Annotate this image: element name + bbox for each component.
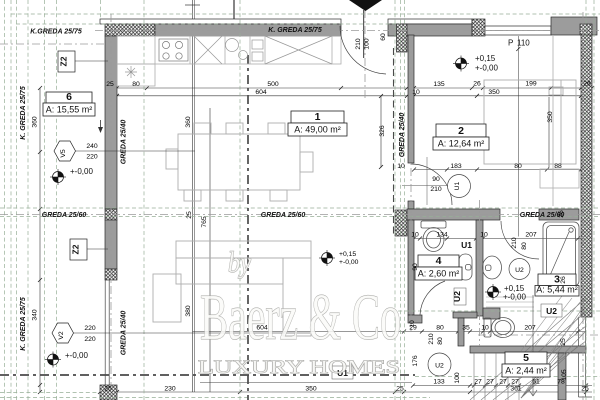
svg-text:25: 25 xyxy=(581,386,589,393)
svg-text:25: 25 xyxy=(106,81,114,88)
svg-text:210: 210 xyxy=(430,186,442,193)
svg-text:230: 230 xyxy=(164,386,176,393)
svg-text:240: 240 xyxy=(86,143,98,150)
svg-text:210: 210 xyxy=(428,333,435,345)
svg-text:Z2: Z2 xyxy=(59,56,69,66)
svg-text:210: 210 xyxy=(511,237,518,249)
svg-text:26: 26 xyxy=(473,81,481,88)
svg-text:Z2: Z2 xyxy=(71,244,81,254)
svg-text:350: 350 xyxy=(547,111,554,123)
svg-text:135: 135 xyxy=(433,81,445,88)
svg-text:207: 207 xyxy=(524,325,536,332)
svg-text:27: 27 xyxy=(474,379,482,386)
svg-text:27: 27 xyxy=(499,379,507,386)
svg-text:U1: U1 xyxy=(454,181,461,190)
svg-text:25: 25 xyxy=(560,338,567,346)
svg-text:350: 350 xyxy=(488,89,500,96)
svg-text:199: 199 xyxy=(525,81,537,88)
svg-text:A: 49,00 m²: A: 49,00 m² xyxy=(294,125,341,135)
svg-text:A: 12,64 m²: A: 12,64 m² xyxy=(438,139,485,149)
svg-text:+-0,00: +-0,00 xyxy=(70,167,93,176)
svg-text:K.GREDA 25/75: K.GREDA 25/75 xyxy=(30,29,82,36)
svg-text:GREDA 25/40: GREDA 25/40 xyxy=(121,120,128,165)
svg-text:27: 27 xyxy=(511,379,519,386)
svg-text:60: 60 xyxy=(380,33,387,41)
svg-text:GREDA 25/40: GREDA 25/40 xyxy=(399,113,406,158)
svg-text:4: 4 xyxy=(436,255,442,267)
svg-text:10: 10 xyxy=(412,89,420,96)
svg-text:10: 10 xyxy=(397,163,405,170)
svg-text:A: 5,44 m²: A: 5,44 m² xyxy=(536,285,578,295)
svg-text:25: 25 xyxy=(396,386,404,393)
svg-text:U2: U2 xyxy=(546,306,557,316)
svg-text:361: 361 xyxy=(510,386,522,393)
svg-text:360: 360 xyxy=(32,116,39,128)
svg-text:10: 10 xyxy=(409,320,416,328)
svg-text:V5: V5 xyxy=(60,149,67,158)
svg-text:210: 210 xyxy=(355,38,362,50)
svg-text:360: 360 xyxy=(185,116,192,128)
svg-text:U2: U2 xyxy=(515,267,524,274)
svg-text:350: 350 xyxy=(305,386,317,393)
svg-text:26: 26 xyxy=(558,210,565,218)
svg-text:25: 25 xyxy=(104,386,112,393)
svg-text:220: 220 xyxy=(84,336,96,343)
svg-text:+0,15: +0,15 xyxy=(339,251,356,258)
svg-text:88: 88 xyxy=(554,163,562,170)
svg-text:51: 51 xyxy=(532,379,540,386)
svg-text:10: 10 xyxy=(480,232,488,239)
svg-text:35: 35 xyxy=(462,325,470,332)
svg-text:P: P xyxy=(508,39,513,48)
svg-text:10: 10 xyxy=(411,232,419,239)
svg-text:765: 765 xyxy=(201,216,208,228)
svg-text:2: 2 xyxy=(458,125,464,137)
svg-text:134: 134 xyxy=(436,232,448,239)
svg-text:by: by xyxy=(228,246,252,279)
svg-text:U2: U2 xyxy=(435,363,444,370)
svg-text:+0,15: +0,15 xyxy=(475,54,496,63)
svg-text:100: 100 xyxy=(364,38,371,50)
svg-text:176: 176 xyxy=(412,355,419,367)
svg-text:U1: U1 xyxy=(461,240,472,250)
svg-text:90: 90 xyxy=(432,176,440,183)
svg-text:+-0,00: +-0,00 xyxy=(65,351,88,360)
svg-text:80: 80 xyxy=(514,163,522,170)
svg-text:GREDA 25/60: GREDA 25/60 xyxy=(42,212,87,219)
svg-text:27: 27 xyxy=(486,379,494,386)
svg-text:80: 80 xyxy=(132,81,140,88)
svg-text:Baerz & Co: Baerz & Co xyxy=(200,281,401,354)
svg-text:K. GREDA 25/75: K. GREDA 25/75 xyxy=(268,27,322,34)
svg-text:+-0,00: +-0,00 xyxy=(503,293,526,302)
svg-text:604: 604 xyxy=(255,89,267,96)
svg-text:207: 207 xyxy=(525,232,537,239)
svg-text:105: 105 xyxy=(561,369,568,381)
svg-text:183: 183 xyxy=(450,163,462,170)
svg-text:25: 25 xyxy=(186,211,193,219)
svg-text:+-0,00: +-0,00 xyxy=(475,64,498,73)
svg-text:K. GREDA 25/75: K. GREDA 25/75 xyxy=(20,86,27,140)
svg-text:6: 6 xyxy=(66,91,72,103)
svg-text:380: 380 xyxy=(185,305,192,317)
svg-text:A: 2,44 m²: A: 2,44 m² xyxy=(505,366,547,376)
svg-text:1: 1 xyxy=(315,111,321,123)
svg-text:220: 220 xyxy=(86,154,98,161)
svg-text:GREDA 25/60: GREDA 25/60 xyxy=(261,212,306,219)
svg-text:80: 80 xyxy=(437,337,444,345)
svg-text:500: 500 xyxy=(267,81,279,88)
svg-text:110: 110 xyxy=(517,39,530,48)
svg-text:A: 15,55 m²: A: 15,55 m² xyxy=(46,105,93,115)
svg-text:80: 80 xyxy=(436,325,444,332)
svg-text:A: 2,60 m²: A: 2,60 m² xyxy=(418,269,460,279)
svg-text:K. GREDA 25/75: K. GREDA 25/75 xyxy=(20,297,27,351)
svg-text:80: 80 xyxy=(521,242,528,250)
svg-text:326: 326 xyxy=(379,125,386,137)
svg-text:133: 133 xyxy=(433,379,445,386)
svg-text:26: 26 xyxy=(583,81,591,88)
svg-text:90: 90 xyxy=(412,263,419,271)
svg-text:220: 220 xyxy=(84,325,96,332)
svg-text:10: 10 xyxy=(481,325,489,332)
svg-text:LUXURY HOMES: LUXURY HOMES xyxy=(198,357,400,378)
svg-text:GREDA 25/40: GREDA 25/40 xyxy=(121,311,128,356)
svg-text:100: 100 xyxy=(454,372,461,384)
svg-text:340: 340 xyxy=(32,309,39,321)
svg-text:+-0,00: +-0,00 xyxy=(339,259,359,266)
svg-text:U2: U2 xyxy=(452,291,462,302)
svg-text:26: 26 xyxy=(560,276,567,284)
svg-text:5: 5 xyxy=(523,352,529,364)
svg-text:V2: V2 xyxy=(58,331,65,340)
